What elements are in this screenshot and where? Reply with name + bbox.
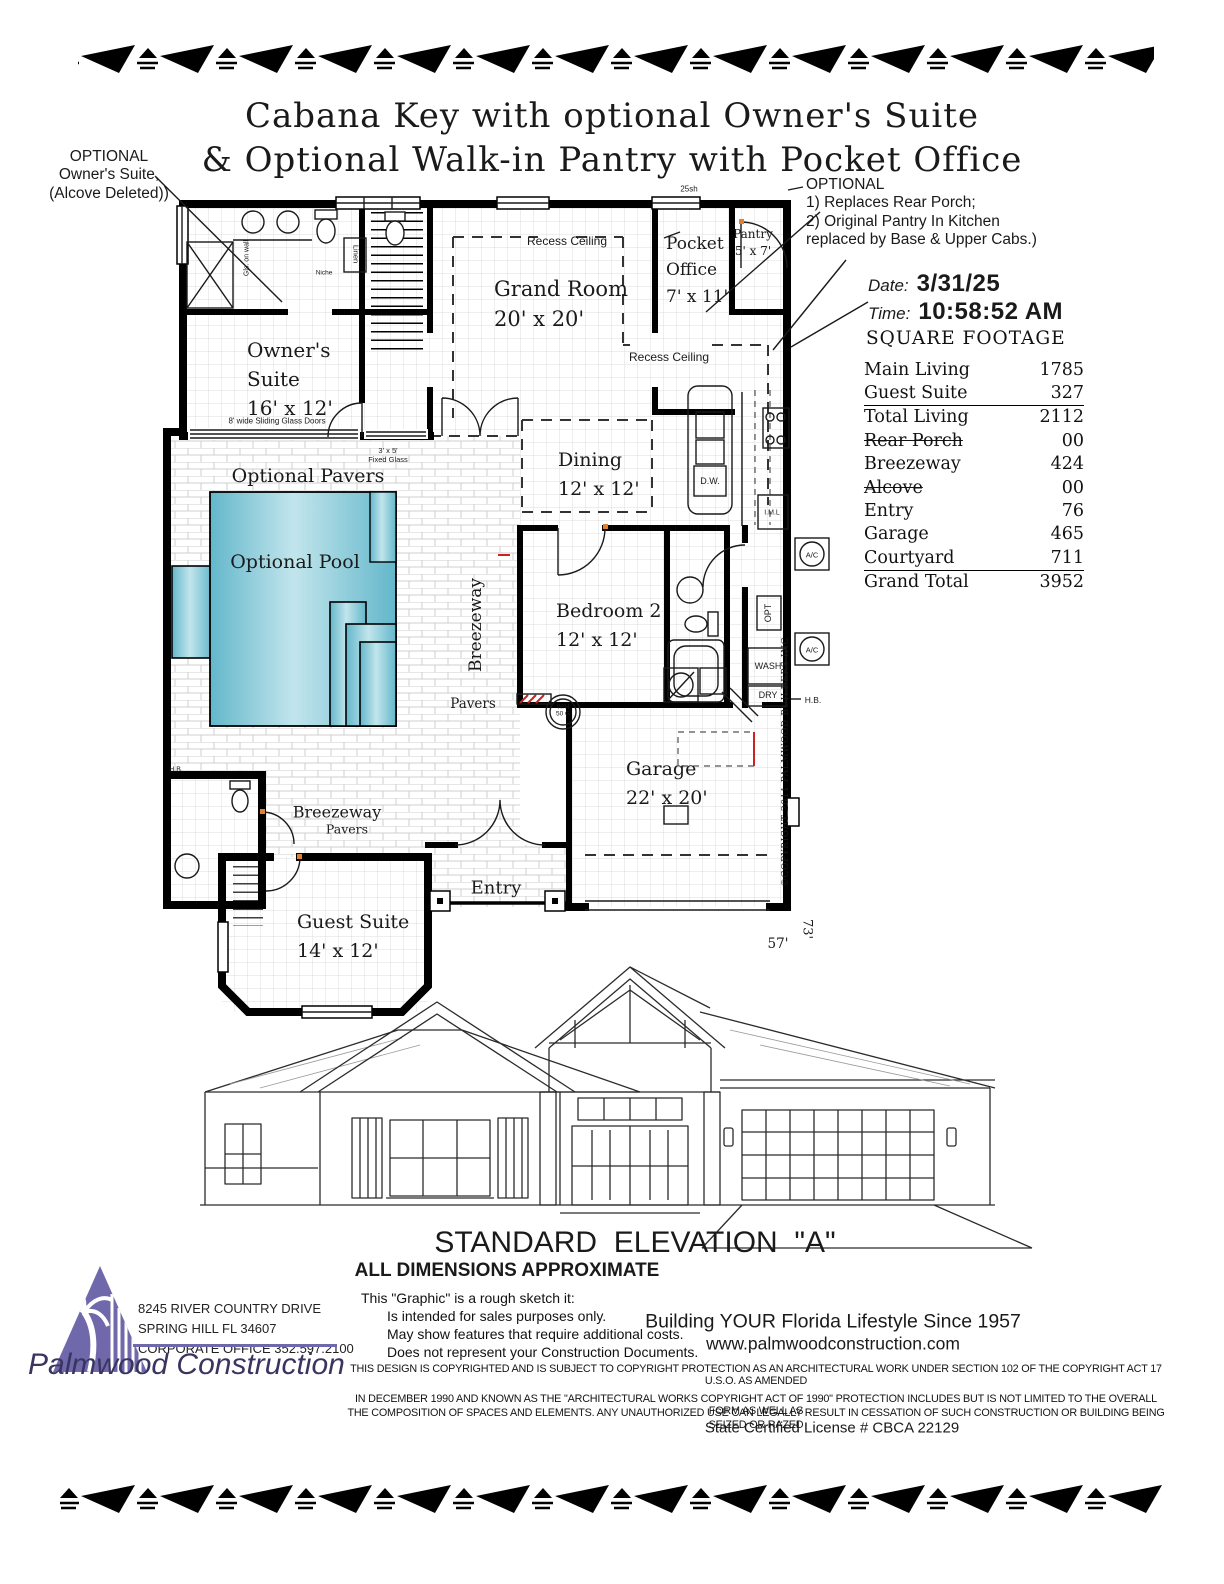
table-row: Garage465 bbox=[864, 523, 1084, 546]
note-sliding-doors: 8' wide Sliding Glass Doors bbox=[228, 417, 325, 426]
note-hose-bib-right: H.B. bbox=[805, 695, 822, 705]
time-value: 10:58:52 AM bbox=[918, 298, 1063, 326]
label-optional-pavers: Optional Pavers bbox=[232, 465, 385, 487]
table-row: Rear Porch00 bbox=[864, 429, 1084, 452]
legal-text-1: THIS DESIGN IS COPYRIGHTED AND IS SUBJEC… bbox=[345, 1363, 1167, 1387]
label-optional-pool: Optional Pool bbox=[230, 551, 360, 573]
note-linen: Linen bbox=[352, 245, 361, 263]
left-option-annotation: OPTIONAL Owner's Suite, (Alcove Deleted)… bbox=[28, 148, 190, 203]
room-label-entry: Entry bbox=[471, 878, 522, 899]
bottom-border bbox=[60, 1484, 1164, 1524]
label-pavers-south: Pavers bbox=[326, 822, 368, 837]
square-footage-title: SQUARE FOOTAGE bbox=[866, 328, 1066, 349]
elevation-title: STANDARD ELEVATION "A" bbox=[434, 1226, 835, 1260]
table-row: Breezeway424 bbox=[864, 453, 1084, 476]
note-glass-on-wall: Gls. on wall bbox=[244, 240, 251, 276]
dimension-depth: 73' bbox=[800, 919, 815, 939]
room-label-owners-suite: Owner'sSuite16' x 12' bbox=[247, 336, 333, 423]
room-label-grand-room: Grand Room20' x 20' bbox=[494, 274, 628, 335]
note-recess-ceiling-1: Recess Ceiling bbox=[527, 234, 607, 248]
date-label: Date: bbox=[868, 276, 909, 296]
note-iml: I.M.L bbox=[764, 510, 780, 517]
label-breezeway-south: Breezeway bbox=[293, 803, 382, 822]
elevation-subtitle: ALL DIMENSIONS APPROXIMATE bbox=[355, 1260, 660, 1282]
room-label-pocket-office: PocketOffice7' x 11' bbox=[666, 231, 728, 310]
note-hose-bib-left: H.B. bbox=[169, 767, 183, 774]
note-niche: Niche bbox=[316, 270, 333, 277]
license-number: State Certified License # CBCA 22129 bbox=[705, 1420, 959, 1437]
table-row: Total Living2112 bbox=[864, 406, 1084, 429]
square-footage-table: Main Living1785 Guest Suite327 Total Liv… bbox=[864, 358, 1084, 594]
date-value: 3/31/25 bbox=[917, 270, 1001, 298]
note-water-heater: W/H50 G bbox=[556, 704, 570, 719]
room-label-guest-suite: Guest Suite14' x 12' bbox=[297, 908, 409, 965]
dimension-width: 57' bbox=[768, 936, 789, 952]
table-row: Courtyard711 bbox=[864, 546, 1084, 570]
label-breezeway-vertical: Breezeway bbox=[466, 578, 486, 672]
tagline: Building YOUR Florida Lifestyle Since 19… bbox=[645, 1311, 1021, 1334]
room-label-dining: Dining12' x 12' bbox=[558, 446, 640, 503]
date-time-stamp: Date:3/31/25 Time:10:58:52 AM bbox=[868, 270, 1063, 326]
note-washer: WASH bbox=[755, 661, 782, 671]
page-title-line1: Cabana Key with optional Owner's Suite bbox=[0, 96, 1224, 136]
company-name: Palmwood Construction bbox=[28, 1348, 345, 1382]
note-ac-2: A/C bbox=[806, 646, 819, 655]
note-fixed-glass: 3' x 5'Fixed Glass bbox=[368, 446, 408, 464]
right-option-annotation: OPTIONAL 1) Replaces Rear Porch; 2) Orig… bbox=[806, 176, 1037, 249]
top-border bbox=[78, 44, 1154, 84]
note-dishwasher: D.W. bbox=[700, 476, 720, 486]
table-row: Main Living1785 bbox=[864, 358, 1084, 381]
table-row: Alcove00 bbox=[864, 476, 1084, 499]
table-row: Entry76 bbox=[864, 499, 1084, 522]
note-dryer: DRY bbox=[759, 690, 778, 700]
note-recess-ceiling-2: Recess Ceiling bbox=[629, 350, 709, 364]
address-underline bbox=[133, 1344, 337, 1347]
room-label-garage: Garage22' x 20' bbox=[626, 755, 708, 812]
plan-copyright-vertical: ©COPYRIGHT 2011 PALMWOOD BUILDERS INC bbox=[781, 637, 791, 887]
room-label-bedroom2: Bedroom 212' x 12' bbox=[556, 597, 661, 654]
website-url: www.palmwoodconstruction.com bbox=[706, 1334, 960, 1355]
time-label: Time: bbox=[868, 304, 910, 324]
sales-flyer-page: .w8{stroke:#000;stroke-width:8;fill:none… bbox=[0, 0, 1224, 1584]
label-pavers-mid: Pavers bbox=[450, 696, 496, 712]
note-shelf-25sh: 25sh bbox=[680, 185, 697, 194]
table-row: Guest Suite327 bbox=[864, 381, 1084, 405]
room-label-pantry: Pantry5' x 7' bbox=[733, 226, 773, 260]
table-row: Grand Total3952 bbox=[864, 571, 1084, 594]
note-opt: OPT bbox=[763, 604, 773, 623]
note-ac-1: A/C bbox=[806, 551, 819, 560]
